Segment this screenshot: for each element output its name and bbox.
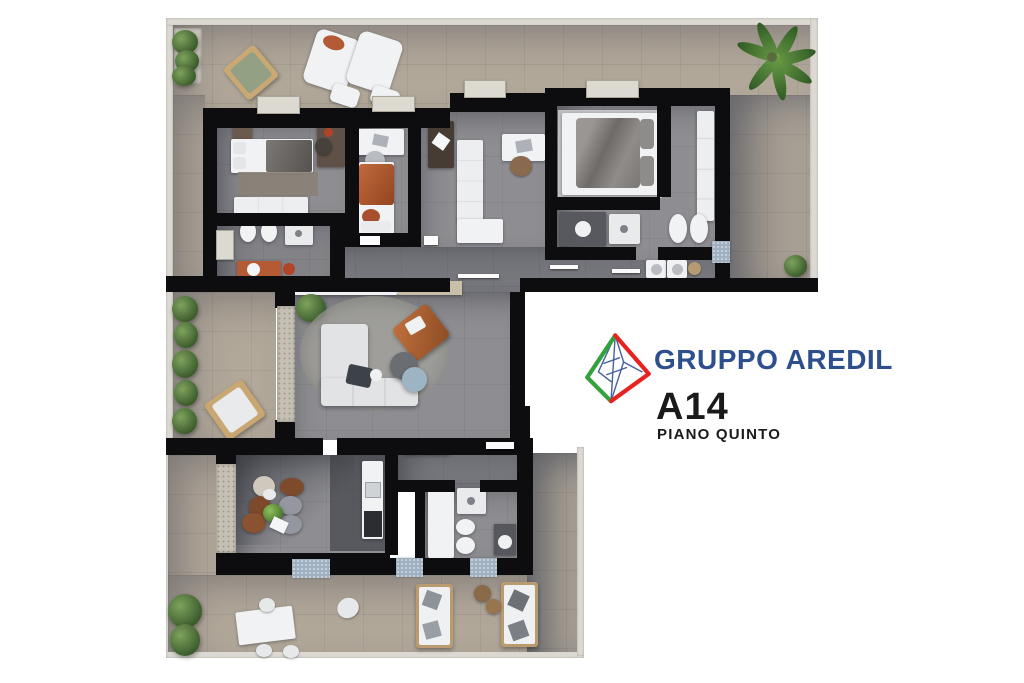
window-bedroom2 <box>372 96 415 112</box>
bedroom2-laptop <box>372 134 389 148</box>
parapet-right-lower <box>577 447 584 656</box>
wall-bathroom3-west <box>415 483 425 565</box>
master-toilet <box>690 214 708 243</box>
door-leaf-living <box>458 274 499 278</box>
study-laptop <box>515 139 533 154</box>
washing-machine <box>646 260 666 278</box>
wall-bedroom1-divider <box>345 108 359 247</box>
master-blanket <box>576 118 640 188</box>
bedroom1-desk-chair <box>315 138 332 155</box>
kitchen-sink <box>365 482 381 498</box>
study-wardrobe-vertical <box>457 140 483 222</box>
bathroom3-shower-drain <box>467 497 475 505</box>
bathroom1-stool <box>283 263 295 275</box>
wall-bedroom1-bath <box>217 213 345 226</box>
outdoor-chair-4 <box>283 645 299 658</box>
wall-bedroom2-east <box>408 115 421 237</box>
bedroom2-bed <box>359 162 394 234</box>
window-bedroom1 <box>257 96 300 114</box>
bedroom2-pillow-white <box>361 221 391 232</box>
mat-kitchen-terrace-1 <box>292 559 330 578</box>
master-shower-drain <box>620 225 628 233</box>
mat-bathroom3-terrace <box>470 558 497 577</box>
bedroom1-desk-lamp <box>324 128 333 137</box>
wall-pier-stub <box>518 406 530 440</box>
master-pillow-2 <box>640 156 654 186</box>
window-master <box>586 80 639 98</box>
wall-west-upper <box>203 108 217 278</box>
dining-chair-brown-1 <box>280 478 304 496</box>
wall-hall-bath-left <box>398 480 455 492</box>
master-shower <box>609 214 640 244</box>
left-upper-terrace-floor <box>173 95 205 278</box>
wall-hall-bath-right <box>480 480 517 492</box>
bedroom2-desk <box>357 129 404 155</box>
wall-closet-divider <box>657 100 671 197</box>
mat-kitchen-terrace-2 <box>396 558 423 577</box>
bottom-left-plant-2 <box>170 624 200 656</box>
bedroom2-blanket <box>359 164 394 205</box>
entry-door-leaf <box>486 442 514 449</box>
balcony-plant-1 <box>172 296 198 322</box>
unit-label: A14 <box>656 386 729 429</box>
wall-living-west-bottom <box>275 420 295 438</box>
side-table-blue <box>402 367 427 392</box>
wall-bathroom1-east <box>330 213 345 292</box>
dining-chair-brown-3 <box>242 513 266 533</box>
wall-bottom-east <box>517 442 533 573</box>
wall-master-bath-south-left <box>545 247 636 260</box>
study-wardrobe-horizontal <box>457 219 503 243</box>
kitchen-cooktop <box>364 511 382 537</box>
floorplan-page: GRUPPO AREDIL A14 PIANO QUINTO <box>0 0 1024 683</box>
door-leaf-corridor-2 <box>612 269 640 273</box>
living-window-wall <box>277 306 295 422</box>
master-bed <box>562 113 658 195</box>
laundry-basket <box>688 262 701 275</box>
bathroom3-sink <box>498 535 512 549</box>
bottom-left-plant-1 <box>168 594 202 628</box>
sofa-cushion-round <box>370 369 382 381</box>
outdoor-chair-1 <box>259 598 275 612</box>
balcony-plant-5 <box>172 408 197 434</box>
wall-south-upper-left <box>166 276 332 292</box>
pyramid-logo-icon <box>583 331 653 407</box>
study-paper <box>432 132 451 151</box>
threshold-study <box>424 236 438 245</box>
master-bath-vanity <box>560 212 606 246</box>
wall-south-upper-mid <box>332 278 450 292</box>
palm-trunk <box>767 52 777 62</box>
shower-drain <box>295 230 302 237</box>
dining-window-wall <box>216 464 236 553</box>
ivy-plant-top-left-3 <box>172 66 196 86</box>
dryer <box>667 260 687 278</box>
balcony-plant-2 <box>174 322 198 348</box>
dryer-door <box>672 264 683 275</box>
floor-label: PIANO QUINTO <box>657 426 781 443</box>
vanity-sink <box>247 263 260 276</box>
bathroom3-bidet <box>456 519 475 535</box>
outdoor-chair-3 <box>256 644 272 657</box>
wall-study-master <box>545 93 557 247</box>
bathroom3-toilet <box>456 537 475 554</box>
bathroom3-vanity <box>494 524 516 555</box>
balcony-plant-3 <box>172 350 198 378</box>
small-bush-right-terrace <box>784 255 807 277</box>
master-bath-sink <box>575 221 591 237</box>
master-walkin-wardrobe <box>697 111 714 221</box>
master-bidet <box>669 214 687 243</box>
door-leaf-corridor-1 <box>550 265 578 269</box>
washer-door <box>651 264 662 275</box>
window-study <box>464 80 506 98</box>
bed-pillow-2 <box>233 157 246 169</box>
wall-south-upper-right <box>520 278 818 292</box>
master-pillow-1 <box>640 119 654 149</box>
door-bedroom1-terrace <box>216 230 234 260</box>
bed-blanket <box>266 140 312 172</box>
bedroom1-bed <box>231 139 313 173</box>
outdoor-pouf-2 <box>486 599 501 614</box>
wall-kitchen-hall <box>385 455 398 555</box>
balcony-plant-4 <box>174 380 198 406</box>
bedroom1-rug <box>238 172 318 196</box>
study-desk-chair <box>510 156 532 176</box>
wall-master-bath-divider <box>557 197 660 210</box>
outdoor-sofa-1 <box>416 584 453 648</box>
company-name: GRUPPO AREDIL <box>654 344 893 376</box>
wall-bedroom2-south <box>345 233 421 247</box>
threshold-bedroom2 <box>360 236 380 245</box>
bathroom3-cabinet <box>428 489 454 558</box>
dining-side-table <box>263 489 276 500</box>
outdoor-sofa-2 <box>501 582 538 647</box>
lounger-pillow <box>321 33 346 53</box>
palm-plant <box>733 22 813 100</box>
wall-living-south-left <box>166 438 323 455</box>
bed-pillow <box>233 142 246 154</box>
study-cabinet <box>428 121 454 168</box>
company-logo <box>583 331 653 407</box>
armchair-pillow-white <box>404 315 426 335</box>
mat-master-terrace-door <box>712 241 730 263</box>
